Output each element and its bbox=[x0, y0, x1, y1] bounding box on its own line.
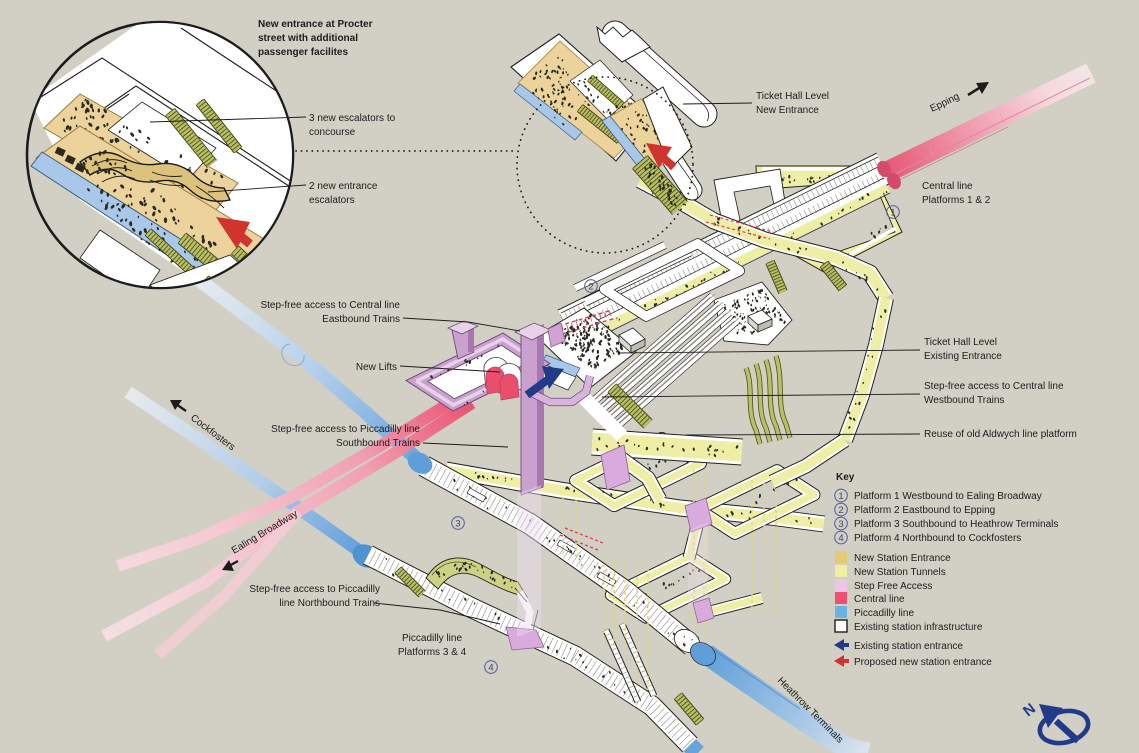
svg-text:Central line: Central line bbox=[922, 181, 973, 192]
svg-text:4: 4 bbox=[488, 662, 493, 673]
svg-text:Step-free access to Piccadill: Step-free access to Piccadilly line bbox=[271, 424, 420, 435]
svg-text:Westbound Trains: Westbound Trains bbox=[924, 395, 1004, 406]
svg-text:Piccadilly line: Piccadilly line bbox=[854, 608, 914, 619]
svg-text:1: 1 bbox=[890, 207, 895, 218]
svg-text:Platform 1 Westbound to Ealing: Platform 1 Westbound to Ealing Broadway bbox=[854, 491, 1042, 502]
svg-text:Platform 2 Eastbound to Epping: Platform 2 Eastbound to Epping bbox=[854, 505, 995, 516]
svg-text:Proposed new station entrance: Proposed new station entrance bbox=[854, 657, 992, 668]
svg-text:New Station Tunnels: New Station Tunnels bbox=[854, 567, 946, 578]
svg-text:Step-free access to Central li: Step-free access to Central line bbox=[260, 300, 400, 311]
svg-text:Existing Entrance: Existing Entrance bbox=[924, 351, 1002, 362]
svg-text:Eastbound Trains: Eastbound Trains bbox=[322, 314, 400, 325]
svg-text:Step-free access to Piccadilly: Step-free access to Piccadilly bbox=[249, 584, 380, 595]
svg-text:Step Free Access: Step Free Access bbox=[854, 581, 932, 592]
svg-text:New entrance at Procter: New entrance at Procter bbox=[258, 19, 373, 30]
svg-text:escalators: escalators bbox=[309, 195, 355, 206]
svg-text:3 new escalators to: 3 new escalators to bbox=[309, 113, 396, 124]
svg-text:Ticket Hall Level: Ticket Hall Level bbox=[756, 91, 829, 102]
svg-text:Platforms 1 & 2: Platforms 1 & 2 bbox=[922, 195, 991, 206]
svg-text:2 new entrance: 2 new entrance bbox=[309, 181, 378, 192]
svg-text:passenger facilites: passenger facilites bbox=[258, 47, 348, 58]
svg-text:1: 1 bbox=[838, 491, 843, 502]
svg-text:line Northbound Trains: line Northbound Trains bbox=[279, 598, 380, 609]
svg-text:street with additional: street with additional bbox=[258, 33, 358, 44]
svg-text:Southbound Trains: Southbound Trains bbox=[336, 438, 420, 449]
svg-text:New Station Entrance: New Station Entrance bbox=[854, 553, 951, 564]
svg-text:Platform 3 Southbound to Heath: Platform 3 Southbound to Heathrow Termin… bbox=[854, 519, 1058, 530]
svg-text:Key: Key bbox=[836, 472, 855, 483]
svg-text:concourse: concourse bbox=[309, 127, 356, 138]
svg-text:Ticket Hall Level: Ticket Hall Level bbox=[924, 337, 997, 348]
svg-text:Existing station entrance: Existing station entrance bbox=[854, 641, 963, 652]
svg-text:Platform 4 Northbound to Cockf: Platform 4 Northbound to Cockfosters bbox=[854, 533, 1021, 544]
svg-text:Central line: Central line bbox=[854, 594, 905, 605]
svg-text:3: 3 bbox=[455, 518, 460, 529]
svg-text:2: 2 bbox=[838, 505, 843, 516]
svg-text:4: 4 bbox=[838, 533, 843, 544]
svg-text:Reuse of old Aldwych line plat: Reuse of old Aldwych line platform bbox=[924, 429, 1077, 440]
svg-text:Existing station infrastructur: Existing station infrastructure bbox=[854, 622, 983, 633]
svg-text:3: 3 bbox=[838, 519, 843, 530]
svg-text:Piccadilly line: Piccadilly line bbox=[402, 633, 462, 644]
svg-text:2: 2 bbox=[588, 281, 593, 292]
svg-text:New Lifts: New Lifts bbox=[356, 362, 397, 373]
svg-text:Platforms 3 & 4: Platforms 3 & 4 bbox=[398, 647, 467, 658]
svg-text:Step-free access to Central li: Step-free access to Central line bbox=[924, 381, 1064, 392]
svg-text:New Entrance: New Entrance bbox=[756, 105, 819, 116]
